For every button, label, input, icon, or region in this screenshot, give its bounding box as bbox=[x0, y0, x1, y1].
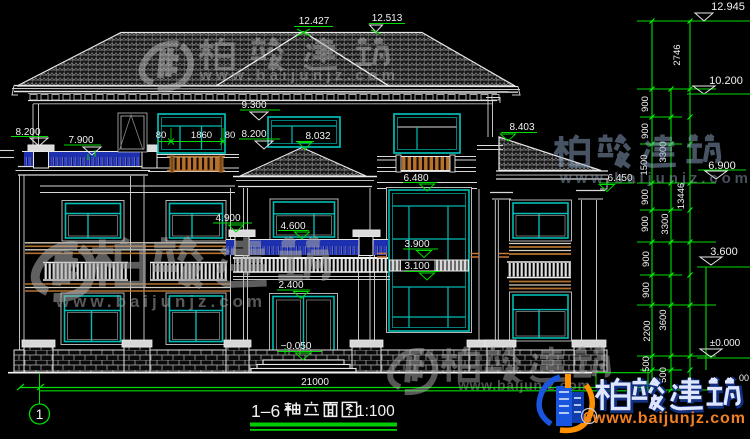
svg-text:21000: 21000 bbox=[301, 377, 329, 388]
svg-text:3600: 3600 bbox=[658, 309, 669, 330]
svg-text:7.900: 7.900 bbox=[68, 135, 93, 146]
svg-text:1: 1 bbox=[36, 406, 44, 422]
svg-text:9.300: 9.300 bbox=[241, 100, 266, 111]
svg-text:2.400: 2.400 bbox=[278, 280, 303, 291]
svg-text:3.900: 3.900 bbox=[404, 239, 429, 250]
svg-text:1860: 1860 bbox=[191, 130, 212, 141]
svg-text:1–6: 1–6 bbox=[251, 401, 280, 421]
svg-text:3.100: 3.100 bbox=[404, 261, 429, 272]
svg-text:3300: 3300 bbox=[660, 213, 671, 234]
svg-text:900: 900 bbox=[640, 123, 651, 139]
svg-text:6www.baijunjz.com: 6www.baijunjz.com bbox=[583, 410, 745, 427]
svg-text:900: 900 bbox=[640, 189, 651, 205]
svg-text:8.200: 8.200 bbox=[241, 129, 266, 140]
svg-text:900: 900 bbox=[640, 216, 651, 232]
svg-text:4.900: 4.900 bbox=[215, 213, 240, 224]
svg-text:900: 900 bbox=[641, 251, 652, 267]
svg-text:10.200: 10.200 bbox=[709, 75, 743, 87]
svg-text:8.403: 8.403 bbox=[509, 122, 534, 133]
svg-text:900: 900 bbox=[641, 282, 652, 298]
svg-text:12.513: 12.513 bbox=[372, 13, 403, 24]
svg-text:500: 500 bbox=[641, 356, 652, 372]
svg-text:900: 900 bbox=[640, 96, 651, 112]
svg-text:12.427: 12.427 bbox=[299, 16, 330, 27]
svg-text:1:100: 1:100 bbox=[356, 403, 395, 420]
svg-text:3.600: 3.600 bbox=[710, 246, 738, 258]
svg-text:2746: 2746 bbox=[672, 44, 683, 65]
svg-text:2200: 2200 bbox=[642, 320, 653, 341]
svg-text:00: 00 bbox=[739, 373, 749, 383]
svg-text:12.945: 12.945 bbox=[711, 1, 745, 13]
svg-text:8.032: 8.032 bbox=[305, 131, 330, 142]
svg-text:80: 80 bbox=[225, 130, 236, 141]
svg-text:±0.000: ±0.000 bbox=[710, 338, 741, 349]
svg-text:80: 80 bbox=[156, 130, 167, 141]
